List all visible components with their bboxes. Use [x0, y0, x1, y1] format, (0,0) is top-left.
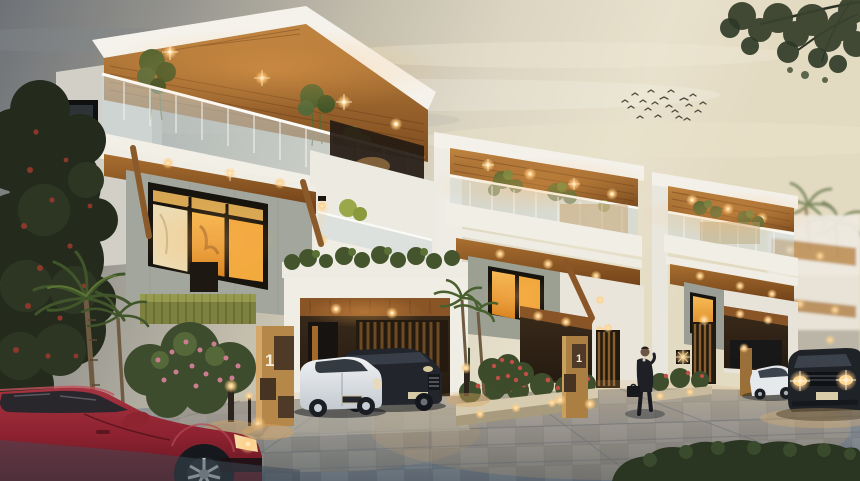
black-suv-plate	[816, 392, 838, 400]
plot-number-1: 1	[265, 351, 274, 370]
briefcase	[627, 386, 640, 397]
carport-white-hatchback	[294, 357, 386, 418]
bollard-light	[228, 388, 234, 422]
villa1-glass-block-band	[140, 294, 256, 324]
pillar1-dark-panel	[274, 336, 294, 370]
plot-sign-pillar-3	[739, 343, 752, 396]
villa3-carport	[724, 306, 788, 372]
scene-svg: 1 1	[0, 0, 860, 481]
villa3-wall-lamp	[675, 349, 691, 365]
plot-number-2: 1	[576, 353, 582, 365]
architectural-render: 1 1	[0, 0, 860, 481]
villa1-dark-niche	[190, 262, 218, 292]
villa2-entry-louvers	[596, 323, 620, 388]
